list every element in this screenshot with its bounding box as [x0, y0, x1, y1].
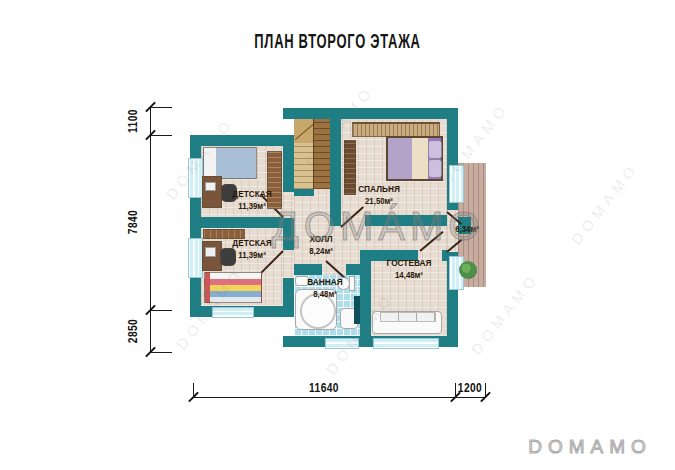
- room-area-bathroom: 8,48м²: [304, 289, 346, 300]
- dim-ext-left-4: [150, 352, 172, 353]
- window-bottom-guest: [373, 338, 439, 349]
- watermark-center: ДОМА́МО: [228, 204, 528, 249]
- domamo-logo: DOMAMO: [515, 436, 665, 458]
- desk-kids-top: [202, 176, 222, 208]
- dim-line-left: [150, 107, 151, 353]
- wall-bath-top-b: [346, 264, 360, 275]
- laptop-kids-top: [205, 182, 216, 191]
- dim-label-11640: 11640: [290, 381, 358, 395]
- room-label-guest: ГОСТЕВАЯ 14,48м²: [380, 258, 437, 281]
- dresser-bedroom: [352, 122, 440, 137]
- wall-stairs-guard: [294, 189, 314, 196]
- page-title: ПЛАН ВТОРОГО ЭТАЖА: [94, 29, 580, 53]
- sofa-back-cushions: [380, 312, 436, 322]
- wall-top-main: [283, 108, 458, 119]
- wall-bath-top-a: [294, 264, 322, 275]
- dim-label-1100: 1100: [126, 96, 140, 147]
- pillow-bedroom-1: [428, 140, 442, 159]
- watermark-tile: DOMAMO: [567, 159, 641, 248]
- room-name-bedroom: СПАЛЬНЯ: [351, 184, 406, 196]
- dim-ext-left-1: [150, 107, 172, 108]
- toilet-tank: [349, 276, 355, 291]
- room-name-kids-top: ДЕТСКАЯ: [224, 189, 279, 201]
- room-area-kids-bottom: 11,39м²: [224, 250, 279, 261]
- dim-label-2850: 2850: [126, 306, 140, 357]
- dim-ext-left-2: [150, 135, 172, 136]
- plant-icon: [459, 261, 477, 279]
- paper-kids-bottom: [205, 247, 216, 257]
- room-name-guest: ГОСТЕВАЯ: [380, 258, 437, 270]
- wall-divider-c: [283, 278, 294, 306]
- wall-divider-a: [283, 146, 294, 192]
- room-area-guest: 14,48м²: [380, 270, 437, 281]
- dim-ext-left-3: [150, 310, 172, 311]
- dim-line-bottom: [193, 397, 485, 398]
- dim-label-1200: 1200: [450, 381, 491, 395]
- room-label-bathroom: ВАННАЯ 8,48м²: [304, 277, 346, 300]
- room-name-bathroom: ВАННАЯ: [304, 277, 346, 289]
- dim-label-7840: 7840: [126, 197, 140, 248]
- window-left-lower: [188, 238, 203, 278]
- dim-ext-bottom-1: [193, 383, 194, 398]
- floor-plan-page: ПЛАН ВТОРОГО ЭТАЖА: [0, 0, 675, 470]
